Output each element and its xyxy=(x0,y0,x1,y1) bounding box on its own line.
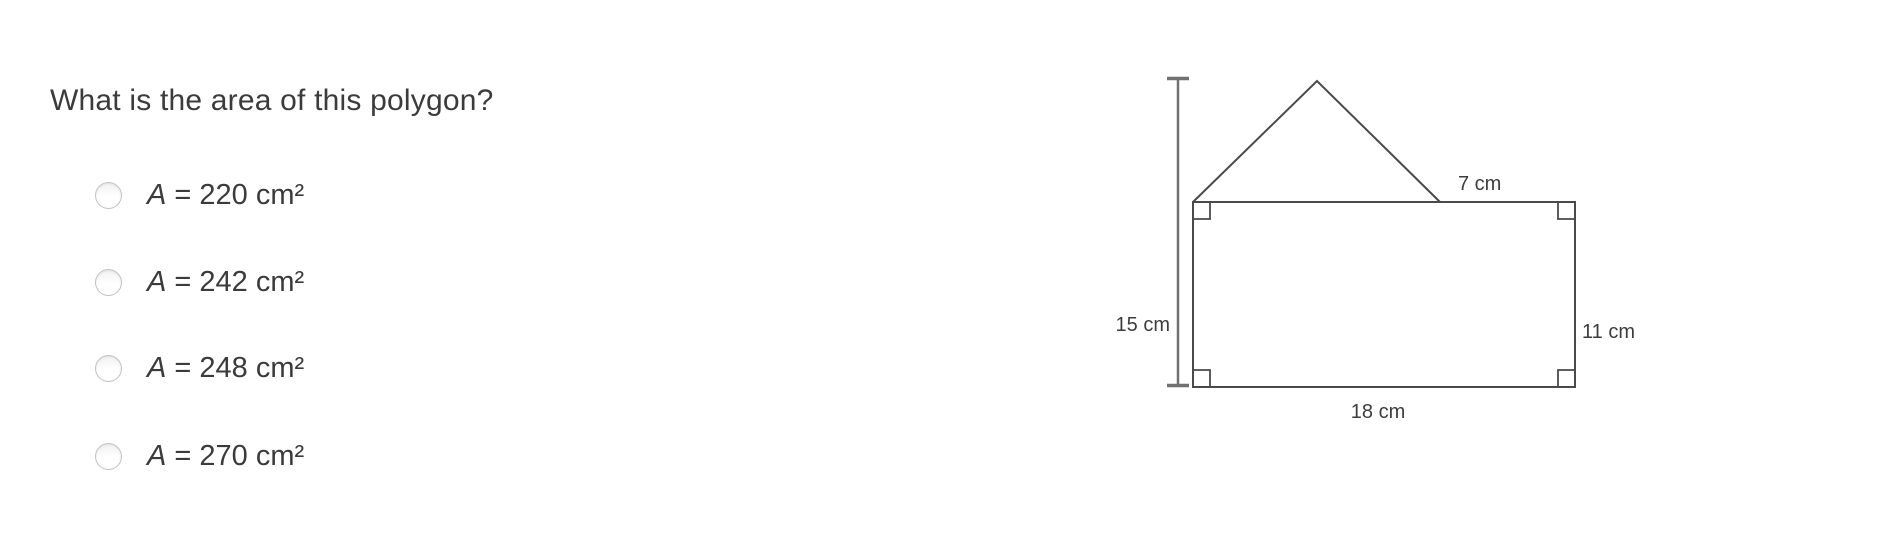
option-value: = 248 cm² xyxy=(166,352,304,384)
label-rect-height: 11 cm xyxy=(1582,321,1635,343)
label-slant-side: 7 cm xyxy=(1458,173,1501,195)
right-angle-mark-bottom-right xyxy=(1558,370,1575,387)
right-angle-mark-top-right xyxy=(1558,202,1575,219)
height-measure-line xyxy=(1167,79,1189,387)
label-total-height: 15 cm xyxy=(1116,314,1170,336)
option-variable: A xyxy=(147,440,166,472)
right-angle-mark-top-left xyxy=(1193,202,1210,219)
option-row-1[interactable]: A = 220 cm² xyxy=(95,178,304,212)
question-text: What is the area of this polygon? xyxy=(50,84,494,118)
option-value: = 242 cm² xyxy=(166,266,304,298)
option-label[interactable]: A = 270 cm² xyxy=(147,440,304,473)
radio-button-icon[interactable] xyxy=(95,182,122,209)
option-label[interactable]: A = 220 cm² xyxy=(147,179,304,212)
option-value: = 220 cm² xyxy=(166,179,304,211)
rectangle-part xyxy=(1193,202,1575,387)
option-label[interactable]: A = 242 cm² xyxy=(147,266,304,299)
triangle-part xyxy=(1193,81,1440,202)
option-row-2[interactable]: A = 242 cm² xyxy=(95,265,304,299)
option-variable: A xyxy=(147,266,166,298)
option-label[interactable]: A = 248 cm² xyxy=(147,352,304,385)
right-angle-marks xyxy=(1193,202,1575,387)
radio-button-icon[interactable] xyxy=(95,269,122,296)
radio-button-icon[interactable] xyxy=(95,355,122,382)
option-row-4[interactable]: A = 270 cm² xyxy=(95,439,304,473)
polygon-diagram: 15 cm 7 cm 11 cm 18 cm xyxy=(1050,50,1690,450)
option-variable: A xyxy=(147,352,166,384)
polygon-outline xyxy=(1193,81,1575,387)
option-value: = 270 cm² xyxy=(166,440,304,472)
label-rect-width: 18 cm xyxy=(1351,401,1405,423)
polygon-figure: 15 cm 7 cm 11 cm 18 cm xyxy=(1050,50,1690,450)
option-variable: A xyxy=(147,179,166,211)
right-angle-mark-bottom-left xyxy=(1193,370,1210,387)
option-row-3[interactable]: A = 248 cm² xyxy=(95,351,304,385)
radio-button-icon[interactable] xyxy=(95,443,122,470)
